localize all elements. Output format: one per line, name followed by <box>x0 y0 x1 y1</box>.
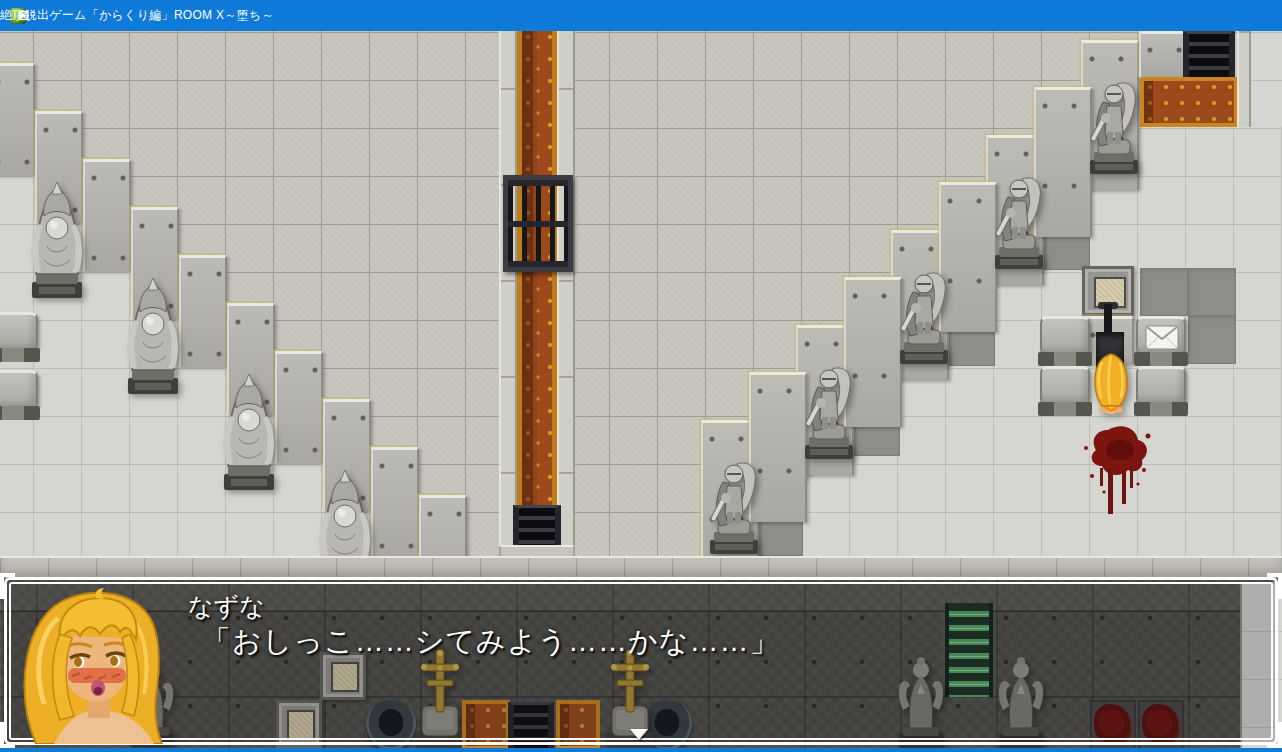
speaker-name: なずな <box>188 590 265 623</box>
topright-grate <box>1183 31 1235 78</box>
dark-floor-tile <box>1140 268 1188 316</box>
wall-step <box>179 255 227 367</box>
blood-splatter-icon <box>1078 418 1158 518</box>
switch-pedestal <box>1136 366 1186 406</box>
lower-wall-top <box>0 556 1282 578</box>
envelope-icon <box>1145 325 1179 350</box>
portrait-nazuna <box>10 584 176 744</box>
wall-step <box>371 447 419 559</box>
dialogue-line: 「おしっこ……シてみよう……かな……」 <box>202 622 779 662</box>
message-corner-br <box>1267 722 1282 748</box>
knight-statue <box>897 262 951 367</box>
player-character <box>1090 352 1132 414</box>
message-corner-tr <box>1267 573 1282 599</box>
title-bar: 絶頂脱出ゲーム「からくり編」ROOM X～堕ち～ ✕ <box>0 0 1282 31</box>
close-icon: ✕ <box>18 9 29 22</box>
switch-pedestal <box>1040 366 1090 406</box>
knight-statue <box>707 452 761 557</box>
wall-step <box>275 351 323 463</box>
pause-cursor-icon <box>630 729 648 740</box>
monk-statue <box>27 180 87 300</box>
switch-pedestal <box>0 312 38 352</box>
monk-statue <box>123 276 183 396</box>
dark-floor-tile <box>1188 316 1236 364</box>
corridor-border-left <box>499 31 517 568</box>
knight-statue <box>1087 72 1141 177</box>
dark-floor-tile <box>1188 268 1236 316</box>
corridor-border-right <box>557 31 575 568</box>
topright-stone-border <box>1237 31 1251 127</box>
switch-pedestal <box>1040 316 1090 356</box>
knight-statue <box>992 167 1046 272</box>
knight-statue <box>802 357 856 462</box>
portcullis-gate-icon <box>503 175 573 272</box>
switch-pedestal <box>1136 316 1186 356</box>
topright-carpet <box>1140 77 1238 127</box>
wall-step <box>1139 31 1185 78</box>
close-button[interactable]: ✕ <box>0 0 46 31</box>
wall-step <box>0 63 35 175</box>
window-bottom-border <box>0 748 1282 752</box>
carpet-corridor <box>517 31 557 552</box>
switch-pedestal <box>0 370 38 410</box>
floor-smooth-topright <box>1250 31 1282 126</box>
monk-statue <box>219 372 279 492</box>
wall-step <box>83 159 131 271</box>
game-window: なずな 「おしっこ……シてみよう……かな……」 絶頂脱出ゲーム「からくり編」RO… <box>0 0 1282 752</box>
